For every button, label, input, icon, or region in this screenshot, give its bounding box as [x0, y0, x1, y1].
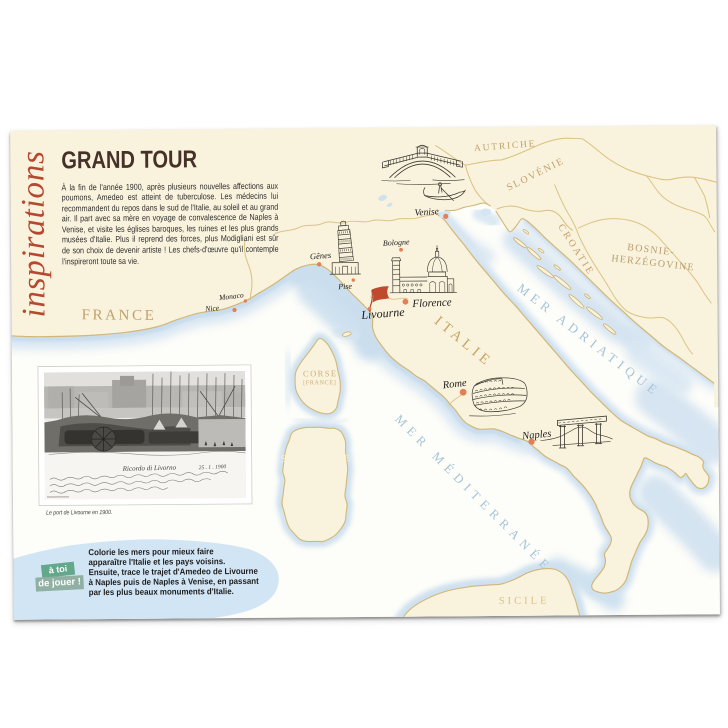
svg-text:[FRANCE]: [FRANCE] [303, 379, 336, 386]
svg-text:Nice: Nice [204, 303, 220, 313]
svg-text:Ricordo di Livorno: Ricordo di Livorno [122, 464, 177, 473]
svg-text:25 . 1 . 1900: 25 . 1 . 1900 [199, 464, 227, 471]
svg-text:Livourne: Livourne [360, 305, 406, 322]
svg-text:AUTRICHE: AUTRICHE [474, 139, 537, 154]
svg-text:Venise: Venise [414, 207, 439, 218]
svg-text:Pise: Pise [337, 282, 353, 292]
svg-text:SARDAIGNE: SARDAIGNE [281, 454, 352, 465]
svg-text:Monaco: Monaco [218, 290, 245, 302]
svg-text:CORSE: CORSE [303, 368, 337, 378]
svg-text:SLOVÉNIE: SLOVÉNIE [505, 155, 567, 194]
svg-text:Bologne: Bologne [383, 237, 411, 248]
svg-text:Florence: Florence [411, 296, 452, 310]
svg-text:SICILE: SICILE [499, 596, 550, 607]
svg-text:FRANCE: FRANCE [82, 307, 157, 324]
